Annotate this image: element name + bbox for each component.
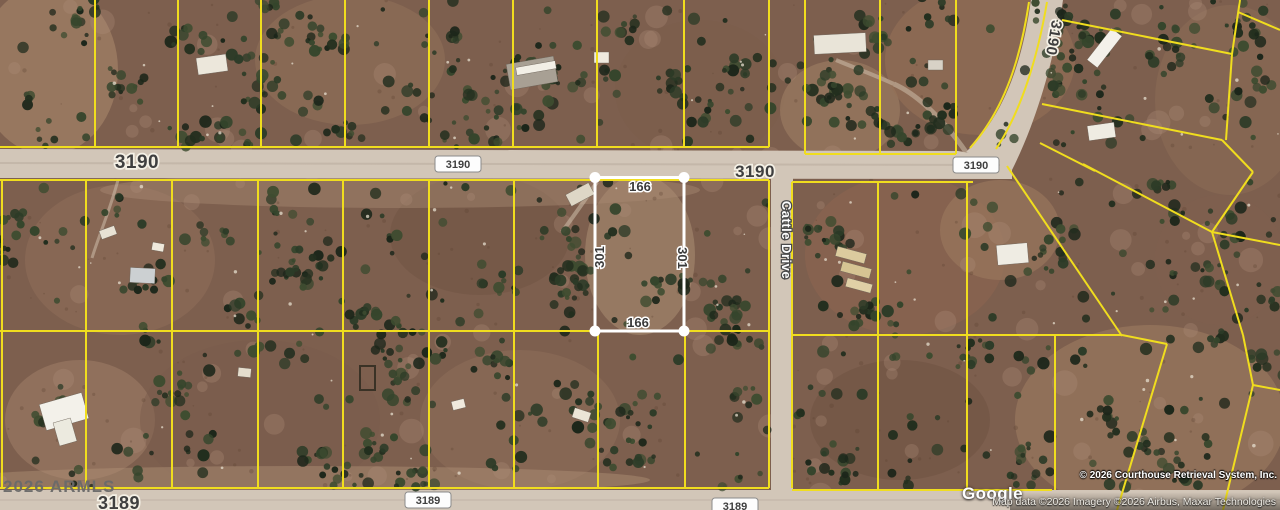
courthouse-credit: © 2026 Courthouse Retrieval System, Inc. bbox=[1080, 470, 1277, 481]
svg-text:3190: 3190 bbox=[446, 159, 470, 171]
building bbox=[130, 267, 156, 283]
svg-text:3190: 3190 bbox=[964, 160, 988, 172]
armls-watermark: 2026 ARMLS bbox=[3, 477, 115, 497]
parcel-dim-top: 166 bbox=[629, 179, 651, 194]
road-label-3190-left: 3190 bbox=[115, 152, 159, 173]
building bbox=[928, 60, 943, 70]
map-data-attribution: Map data ©2026 Imagery ©2026 Airbus, Max… bbox=[992, 496, 1276, 508]
svg-text:3190: 3190 bbox=[735, 162, 775, 181]
road-label-3190-right: 3190 bbox=[735, 162, 775, 181]
parcel-dim-right: 301 bbox=[675, 247, 690, 269]
road-label-3189-bubble-mid: 3189 bbox=[405, 492, 451, 508]
svg-text:3189: 3189 bbox=[416, 495, 440, 507]
road-label-3190-bubble-right: 3190 bbox=[953, 157, 999, 173]
road-label-3190-bubble-mid: 3190 bbox=[435, 156, 481, 172]
building bbox=[238, 367, 252, 377]
road-label-3189-bubble-right: 3189 bbox=[712, 498, 758, 510]
svg-text:3189: 3189 bbox=[723, 501, 747, 510]
svg-text:Cattle Drive: Cattle Drive bbox=[779, 201, 794, 279]
satellite-map[interactable]: 166166301301 31903190319031903190Cattle … bbox=[0, 0, 1280, 510]
parcel-dim-bottom: 166 bbox=[627, 315, 649, 330]
road-label-cattle-drive: Cattle Drive bbox=[779, 201, 794, 279]
map-viewport[interactable]: 166166301301 31903190319031903190Cattle … bbox=[0, 0, 1280, 510]
building bbox=[996, 243, 1029, 266]
svg-text:3190: 3190 bbox=[115, 152, 159, 173]
building bbox=[814, 33, 867, 55]
parcel-dim-left: 301 bbox=[592, 246, 607, 268]
